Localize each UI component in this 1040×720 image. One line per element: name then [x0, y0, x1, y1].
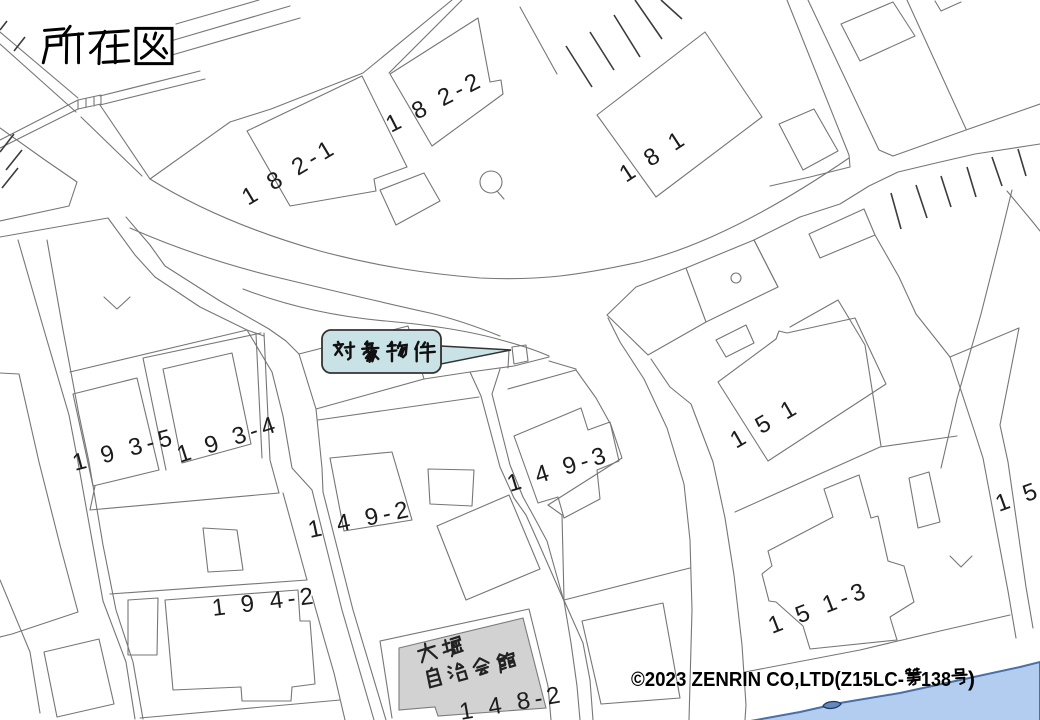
svg-text:1 9 3-5: 1 9 3-5 [70, 423, 180, 477]
svg-text:1 5: 1 5 [992, 476, 1040, 517]
svg-text:): ) [968, 668, 975, 691]
svg-text:1 4 9-3: 1 4 9-3 [504, 441, 613, 498]
svg-text:©2023 ZENRIN CO,LTD(Z15LC-: ©2023 ZENRIN CO,LTD(Z15LC- [631, 668, 904, 691]
svg-text:1 5 1-3: 1 5 1-3 [764, 576, 873, 639]
svg-text:138: 138 [921, 668, 951, 691]
svg-text:1 9 4-2: 1 9 4-2 [210, 582, 319, 622]
svg-text:1 4 9-2: 1 4 9-2 [306, 495, 416, 543]
svg-text:1 8 2-2: 1 8 2-2 [381, 66, 488, 138]
svg-text:1 9 3-4: 1 9 3-4 [174, 410, 283, 469]
